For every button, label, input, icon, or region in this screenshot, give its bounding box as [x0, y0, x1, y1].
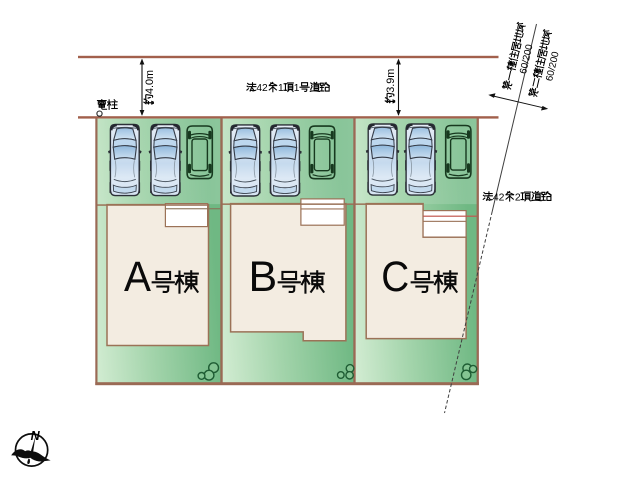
- svg-text:C: C: [381, 252, 409, 300]
- svg-text:N: N: [31, 429, 41, 443]
- svg-text:42: 42: [493, 192, 505, 203]
- svg-text:2: 2: [515, 192, 521, 203]
- svg-text:3.9m: 3.9m: [385, 69, 397, 93]
- svg-text:1: 1: [278, 83, 284, 94]
- svg-text:B: B: [249, 253, 278, 301]
- svg-text:4.0m: 4.0m: [144, 70, 156, 94]
- svg-text:42: 42: [256, 83, 268, 94]
- svg-text:A: A: [124, 252, 151, 300]
- svg-text:1: 1: [294, 83, 300, 94]
